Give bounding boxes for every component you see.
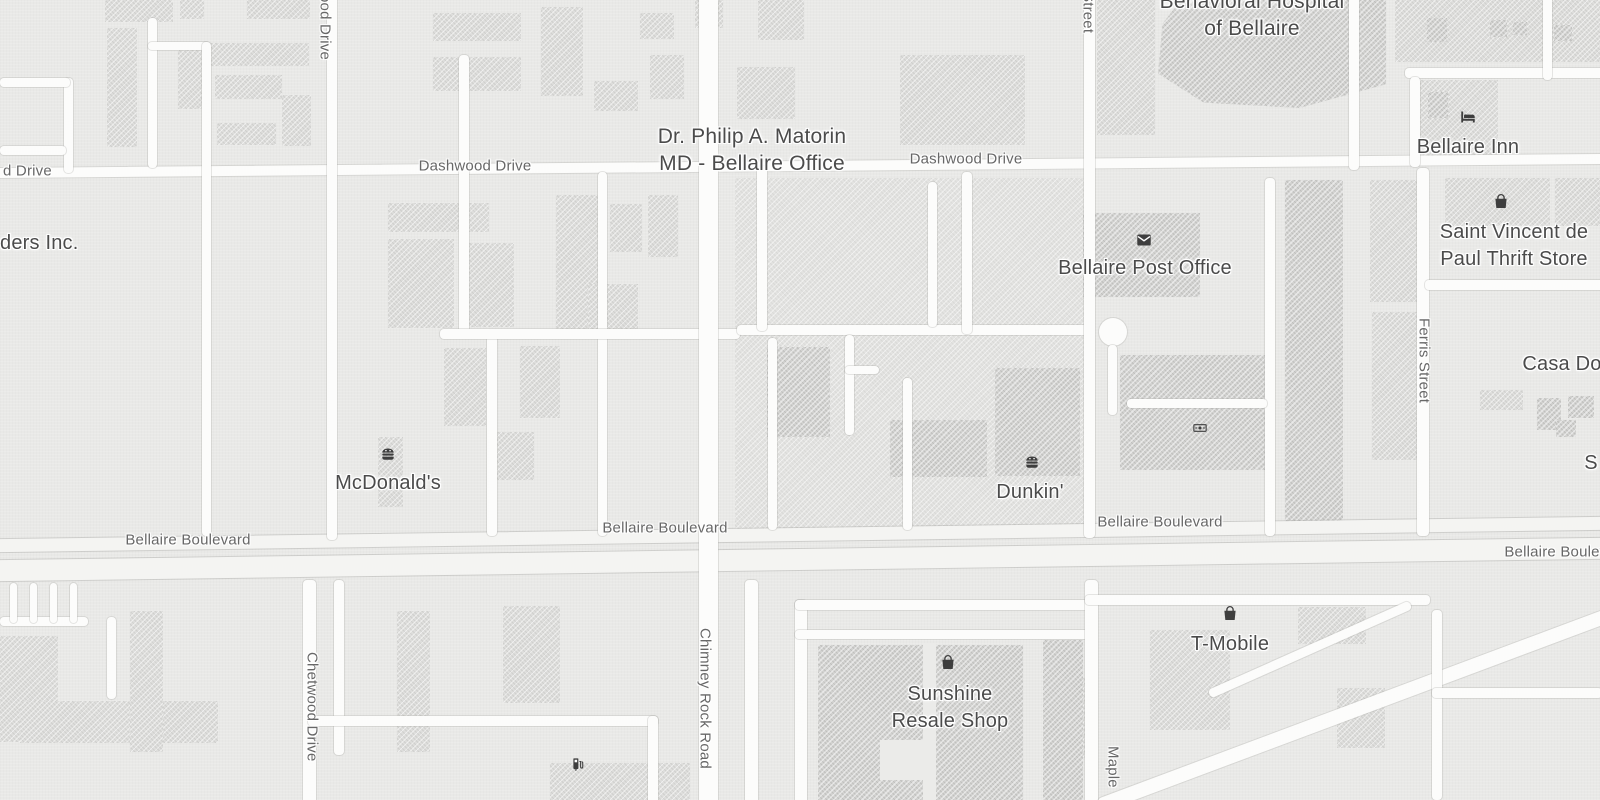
road-segment (962, 172, 972, 334)
building-block (433, 57, 521, 91)
road-segment (1405, 68, 1600, 78)
road-segment (795, 630, 1090, 639)
building-block (520, 346, 560, 418)
poi-s-partial[interactable]: S (1584, 450, 1598, 477)
poi-mcdonalds[interactable]: McDonald's (335, 470, 441, 497)
poi-bellaire-post-office[interactable]: Bellaire Post Office (1058, 255, 1232, 282)
road-label: Bellaire Boulevard (125, 532, 250, 549)
road-segment (1432, 610, 1442, 800)
poi-label-line: T-Mobile (1191, 631, 1269, 658)
road-label: Street (1080, 0, 1097, 33)
building-block (758, 0, 804, 40)
road-label: Dashwood Drive (910, 151, 1023, 168)
poi-label-line: Paul Thrift Store (1440, 246, 1589, 273)
building-block (1120, 355, 1268, 470)
map-canvas[interactable]: d DriveDashwood DriveDashwood DriveBella… (0, 0, 1600, 800)
building-block (107, 28, 137, 147)
building-block (588, 284, 638, 329)
building-block (1372, 312, 1420, 460)
road-segment (148, 42, 210, 50)
road-label: Ferris Street (1416, 318, 1433, 403)
road-segment (202, 42, 211, 536)
building-block (178, 50, 202, 109)
road-segment (0, 146, 66, 155)
poi-label-line: Bellaire Post Office (1058, 255, 1232, 282)
poi-dr-philip-matorin[interactable]: Dr. Philip A. MatorinMD - Bellaire Offic… (658, 123, 847, 177)
road-segment (1099, 318, 1127, 346)
road-label: Chetwood Drive (304, 652, 321, 762)
road-label: Bellaire Boulevard (1097, 514, 1222, 531)
poi-label-line: Saint Vincent de (1440, 219, 1589, 246)
road-segment (903, 378, 912, 530)
bed-icon[interactable] (1459, 108, 1478, 127)
poi-label-line: of Bellaire (1160, 15, 1345, 42)
road-segment (1127, 399, 1267, 408)
poi-label-line: Sunshine (892, 681, 1009, 708)
building-block (503, 606, 560, 703)
building-block (1490, 20, 1507, 37)
building-block (282, 95, 311, 146)
road-segment (648, 716, 658, 800)
fuel-icon[interactable] (570, 756, 587, 773)
road-segment (1425, 280, 1600, 290)
burger-icon[interactable] (379, 445, 398, 464)
building-block (900, 55, 1025, 145)
road-label: Bellaire Boulevard (1504, 544, 1600, 561)
road-segment (10, 583, 17, 623)
mail-icon[interactable] (1135, 231, 1154, 250)
building-block (594, 81, 638, 111)
building-block (388, 203, 489, 232)
poi-label-line: McDonald's (335, 470, 441, 497)
building-block (388, 239, 454, 328)
road-segment (148, 18, 157, 168)
building-block (1480, 390, 1523, 410)
building-block (20, 701, 218, 743)
poi-label-line: Bellaire Inn (1417, 134, 1519, 161)
building-block (737, 67, 795, 119)
road-segment (845, 366, 879, 374)
building-block (1285, 180, 1343, 528)
poi-behavioral-hospital[interactable]: Behavioral Hospitalof Bellaire (1160, 0, 1345, 42)
bag-icon[interactable] (1221, 604, 1240, 623)
building-block (444, 348, 486, 426)
road-label: Bellaire Boulevard (602, 520, 727, 537)
road-label: Dashwood Drive (419, 158, 532, 175)
road-label: Maple (1105, 746, 1122, 788)
road-segment (487, 330, 497, 536)
road-label: ood Drive (317, 0, 334, 60)
poi-label-line: Behavioral Hospital (1160, 0, 1345, 15)
building-block (1513, 22, 1527, 35)
building-block (468, 243, 514, 327)
road-segment (1432, 688, 1600, 698)
road-segment (30, 583, 37, 623)
building-block (650, 55, 684, 99)
road-segment (1265, 178, 1275, 536)
building-block (880, 740, 925, 780)
building-block (397, 611, 430, 752)
poi-casa-do[interactable]: Casa Do (1522, 351, 1600, 378)
bag-icon[interactable] (939, 653, 958, 672)
building-block (610, 204, 642, 252)
burger-icon[interactable] (1023, 453, 1042, 472)
banknote-icon[interactable] (1192, 420, 1208, 436)
bag-icon[interactable] (1492, 192, 1511, 211)
maple-street-road (1085, 580, 1098, 800)
road-segment (845, 335, 854, 435)
building-block (1568, 396, 1594, 418)
road-segment (598, 172, 607, 536)
building-block (640, 13, 674, 39)
building-block (105, 0, 173, 22)
building-block (217, 123, 276, 145)
poi-label-line: MD - Bellaire Office (658, 150, 847, 177)
poi-bellaire-inn[interactable]: Bellaire Inn (1417, 134, 1519, 161)
road-segment (64, 78, 73, 173)
road-segment (440, 329, 740, 339)
road-segment (0, 78, 70, 87)
building-block (247, 0, 310, 19)
poi-t-mobile[interactable]: T-Mobile (1191, 631, 1269, 658)
building-block (1428, 92, 1448, 118)
poi-ders-inc[interactable]: ders Inc. (0, 230, 79, 257)
poi-dunkin[interactable]: Dunkin' (996, 479, 1063, 506)
building-block (433, 13, 521, 41)
poi-sunshine-resale[interactable]: SunshineResale Shop (892, 681, 1009, 735)
building-block (208, 43, 309, 66)
road-segment (1108, 345, 1117, 415)
building-block (130, 611, 163, 752)
poi-label-line: Dr. Philip A. Matorin (658, 123, 847, 150)
building-block (541, 7, 583, 96)
poi-label-line: S (1584, 450, 1598, 477)
building-block (648, 195, 678, 257)
road-segment (1349, 0, 1359, 170)
building-block (1554, 25, 1572, 41)
road-segment (795, 600, 1090, 610)
building-block (215, 75, 282, 99)
road-segment (757, 166, 767, 331)
road-segment (107, 617, 116, 699)
building-block (1097, 0, 1155, 135)
road-segment (334, 580, 344, 755)
road-segment (327, 0, 337, 540)
road-segment (737, 325, 1089, 335)
poi-saint-vincent-thrift[interactable]: Saint Vincent dePaul Thrift Store (1440, 219, 1589, 273)
building-block (180, 0, 204, 19)
road-segment (1543, 0, 1552, 80)
poi-label-line: Casa Do (1522, 351, 1600, 378)
road-label: d Drive (3, 163, 52, 180)
road-segment (928, 182, 937, 327)
poi-label-line: Resale Shop (892, 708, 1009, 735)
road-segment (459, 55, 469, 337)
road-segment (768, 338, 777, 530)
building-block (1043, 640, 1083, 800)
poi-label-line: ders Inc. (0, 230, 79, 257)
building-block (1427, 18, 1447, 42)
road-segment (308, 716, 658, 726)
road-label: Chimney Rock Road (697, 628, 714, 769)
building-block (1556, 420, 1576, 437)
poi-label-line: Dunkin' (996, 479, 1063, 506)
road-segment (745, 580, 758, 800)
road-segment (70, 583, 77, 623)
road-segment (1085, 595, 1430, 605)
building-block (1370, 180, 1418, 302)
road-segment (50, 583, 57, 623)
